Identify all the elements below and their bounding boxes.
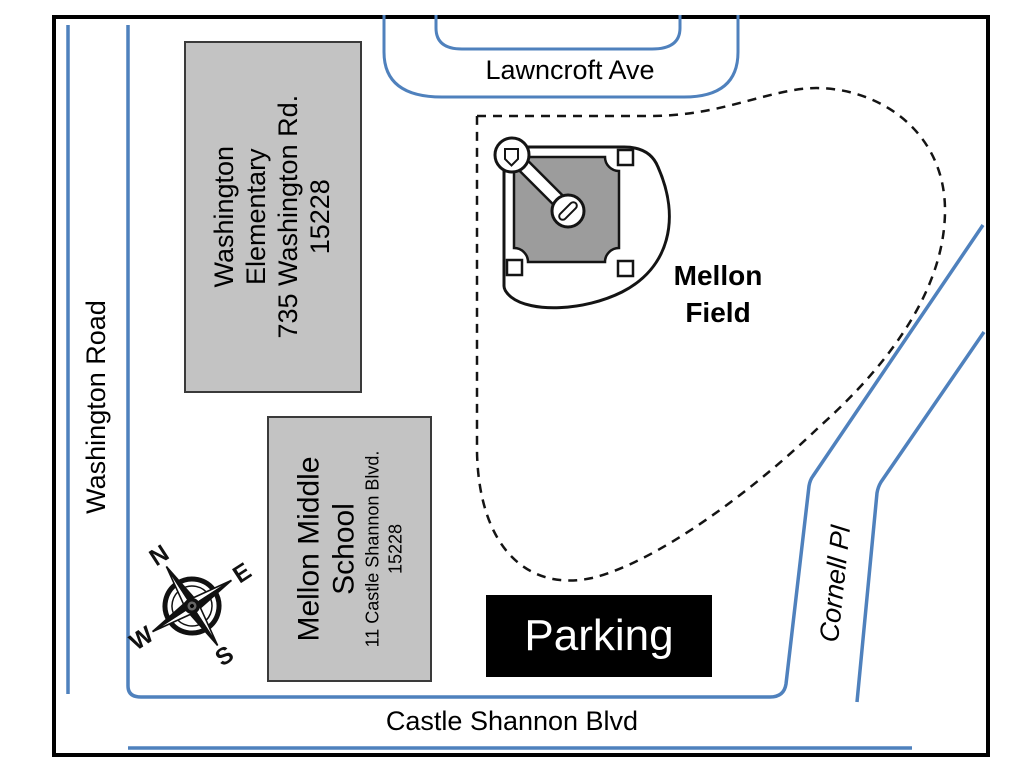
parking-area: Parking [486, 595, 712, 677]
base-first [618, 150, 633, 165]
mellon-field-label-line1: Mellon [638, 257, 798, 294]
base-second [618, 261, 633, 276]
mellon-field-label: Mellon Field [638, 257, 798, 331]
mellon-middle-school-building: Mellon Middle School 11 Castle Shannon B… [267, 416, 432, 682]
parking-label: Parking [524, 611, 673, 661]
compass-rose-icon: N E S W [92, 507, 289, 706]
washington-elementary-name: Washington Elementary [209, 140, 273, 295]
compass-label-s: S [211, 641, 239, 672]
lawncroft-ave-label: Lawncroft Ave [450, 55, 690, 87]
base-third [507, 260, 522, 275]
mellon-middle-school-text: Mellon Middle School 11 Castle Shannon B… [293, 447, 407, 652]
washington-road-label: Washington Road [81, 247, 113, 567]
mellon-middle-school-zip: 15228 [384, 447, 407, 652]
cornell-pl-east-line [857, 332, 984, 702]
washington-elementary-building: Washington Elementary 735 Washington Rd.… [184, 41, 362, 393]
washington-elementary-address: 735 Washington Rd. [273, 95, 305, 339]
compass-label-n: N [145, 540, 174, 572]
lawncroft-inner-curve [436, 15, 680, 49]
mellon-middle-school-name: Mellon Middle School [293, 447, 362, 652]
mellon-field-label-line2: Field [638, 294, 798, 331]
compass-label-e: E [228, 558, 256, 589]
mellon-middle-school-address: 11 Castle Shannon Blvd. [362, 447, 385, 652]
map-canvas: N E S W Washington Road Lawncroft Ave Ca… [0, 0, 1024, 768]
compass-label-w: W [125, 621, 159, 656]
washington-elementary-zip: 15228 [305, 95, 337, 339]
washington-elementary-text: Washington Elementary 735 Washington Rd.… [209, 95, 336, 339]
castle-shannon-blvd-label: Castle Shannon Blvd [352, 706, 672, 738]
